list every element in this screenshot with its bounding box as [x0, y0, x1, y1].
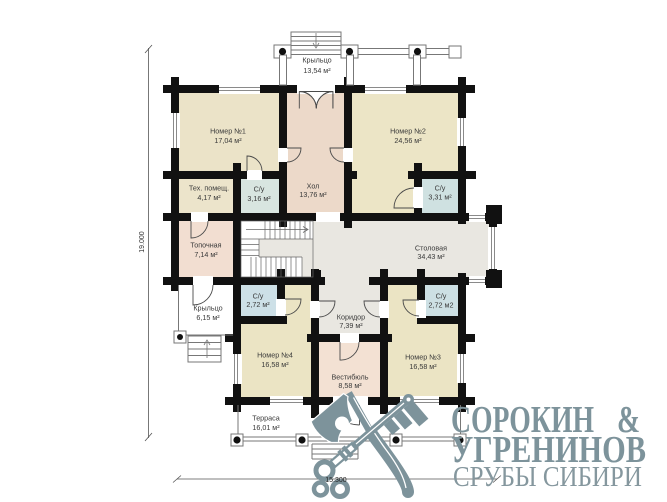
svg-text:16,58 м²: 16,58 м²	[261, 360, 289, 369]
svg-text:Топочная: Топочная	[190, 241, 221, 250]
svg-text:34,43 м²: 34,43 м²	[417, 252, 445, 261]
svg-text:16,58 м²: 16,58 м²	[409, 362, 437, 371]
svg-text:Номер №3: Номер №3	[405, 353, 441, 362]
svg-text:7,39 м²: 7,39 м²	[339, 321, 363, 330]
svg-text:15.300: 15.300	[325, 477, 347, 484]
svg-text:3,16 м²: 3,16 м²	[247, 194, 271, 203]
svg-text:Крыльцо: Крыльцо	[193, 304, 222, 313]
svg-text:С/у: С/у	[254, 185, 265, 194]
svg-text:2,72 м2: 2,72 м2	[429, 301, 454, 310]
svg-text:Номер №4: Номер №4	[257, 351, 293, 360]
svg-text:С/у: С/у	[436, 292, 447, 301]
svg-text:СРУБЫ СИБИРИ: СРУБЫ СИБИРИ	[453, 460, 642, 492]
svg-text:Тех. помещ.: Тех. помещ.	[189, 184, 229, 193]
svg-text:17,04 м²: 17,04 м²	[214, 136, 242, 145]
svg-text:Терраса: Терраса	[252, 414, 280, 423]
svg-text:13,54 м²: 13,54 м²	[303, 66, 331, 75]
svg-text:19.000: 19.000	[139, 231, 146, 253]
svg-text:16,01 м²: 16,01 м²	[252, 423, 280, 432]
svg-text:7,14 м²: 7,14 м²	[194, 250, 218, 259]
svg-text:Номер №1: Номер №1	[210, 127, 246, 136]
svg-text:8,58 м²: 8,58 м²	[338, 381, 362, 390]
svg-text:Номер №2: Номер №2	[390, 127, 426, 136]
svg-text:6,15 м²: 6,15 м²	[196, 313, 220, 322]
svg-text:24,56 м²: 24,56 м²	[394, 136, 422, 145]
svg-text:2,72 м²: 2,72 м²	[246, 300, 270, 309]
svg-text:13,76 м²: 13,76 м²	[299, 190, 327, 199]
svg-text:3,31 м²: 3,31 м²	[428, 193, 452, 202]
svg-text:4,17 м²: 4,17 м²	[197, 193, 221, 202]
svg-text:С/у: С/у	[435, 184, 446, 193]
svg-text:Крыльцо: Крыльцо	[302, 56, 331, 65]
